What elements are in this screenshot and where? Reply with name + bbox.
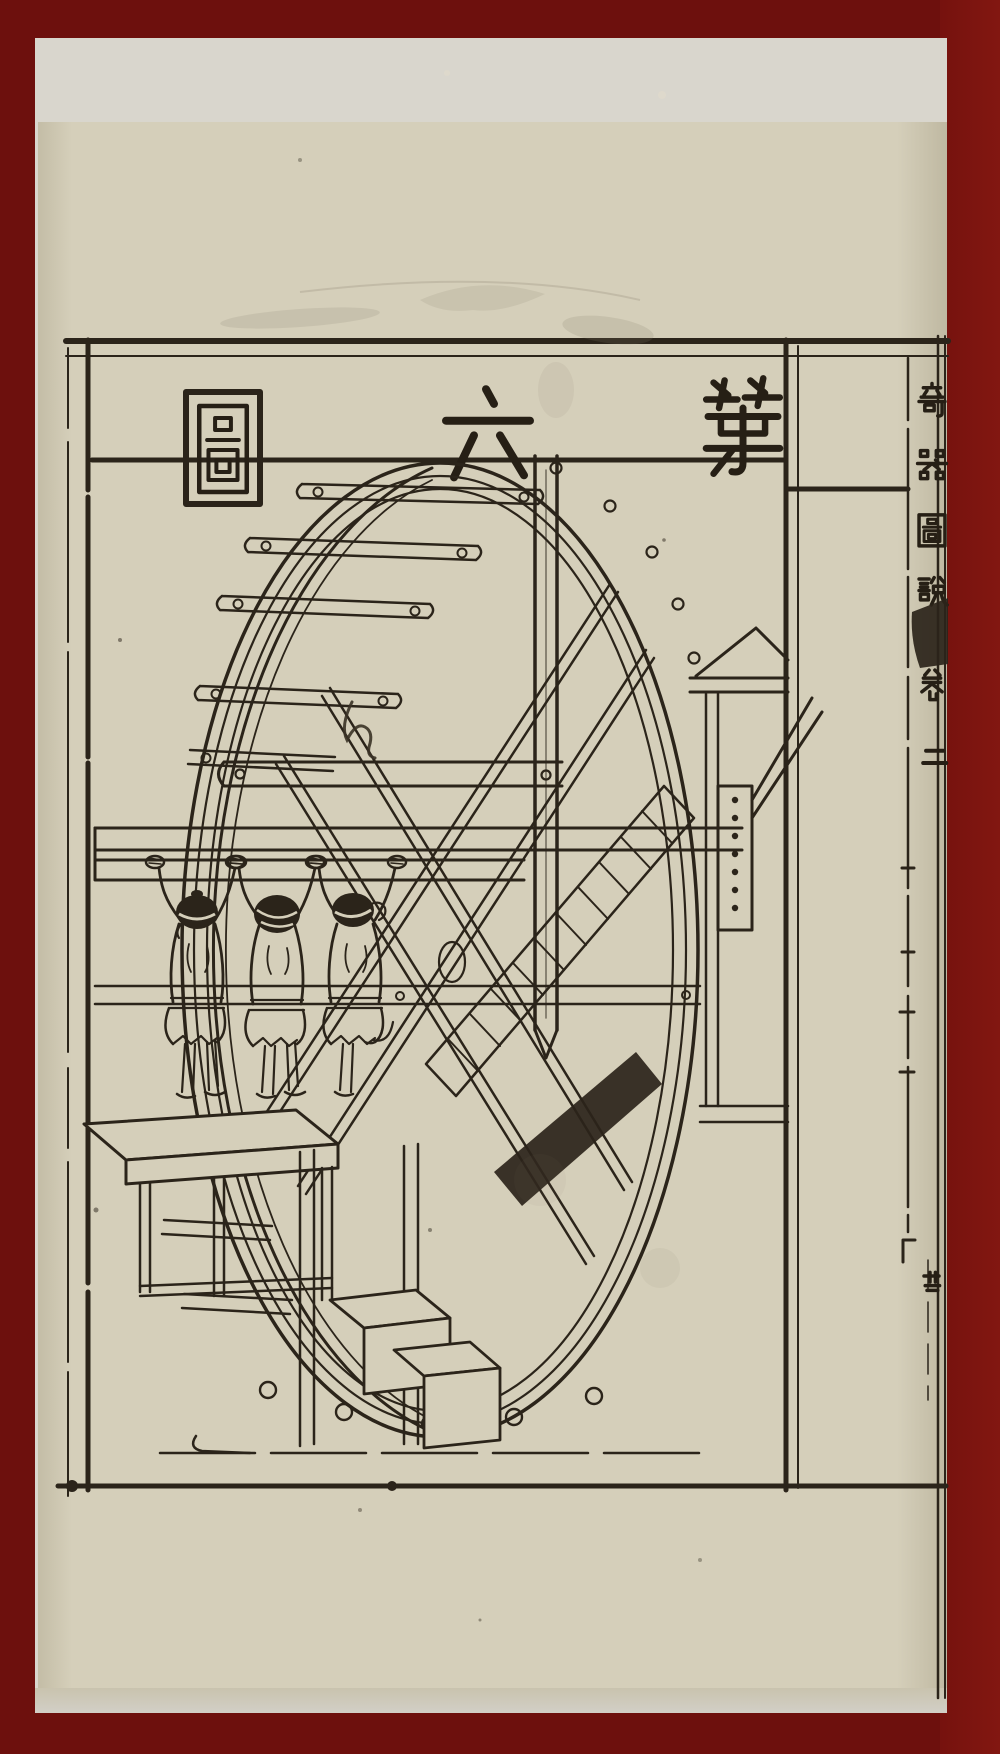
dust-speck	[658, 91, 666, 99]
upper-plank	[219, 762, 563, 786]
margin-char-er-glyph	[923, 751, 946, 763]
margin-ink-blotch	[912, 598, 948, 668]
plank-bolts	[732, 797, 738, 911]
title-plate	[186, 378, 780, 504]
print-frame	[58, 336, 948, 1698]
dust-speck	[444, 70, 450, 76]
margin-char-qi2-glyph	[918, 451, 947, 479]
rim-pegs	[260, 463, 700, 1433]
support-structure	[690, 628, 822, 1122]
worker-1	[146, 856, 246, 1098]
step-2-front	[424, 1368, 500, 1448]
margin-char-qi-glyph	[919, 383, 945, 416]
title-char-tu-glyph	[199, 406, 247, 492]
platform-steps	[84, 1110, 500, 1448]
scanned-book-photo: 第 六 圖 竒 器 圖 說 卷 二 卋 ん	[0, 0, 1000, 1754]
margin-char-tu-glyph	[919, 515, 945, 546]
margin-column	[912, 383, 948, 1290]
rim-inner	[207, 489, 673, 1411]
mid-beams	[95, 986, 700, 1004]
title-char-tu-boxed	[186, 392, 260, 504]
woodcut-illustration	[0, 0, 1000, 1754]
handwritten-mark	[344, 702, 375, 758]
worker-2	[226, 856, 326, 1098]
